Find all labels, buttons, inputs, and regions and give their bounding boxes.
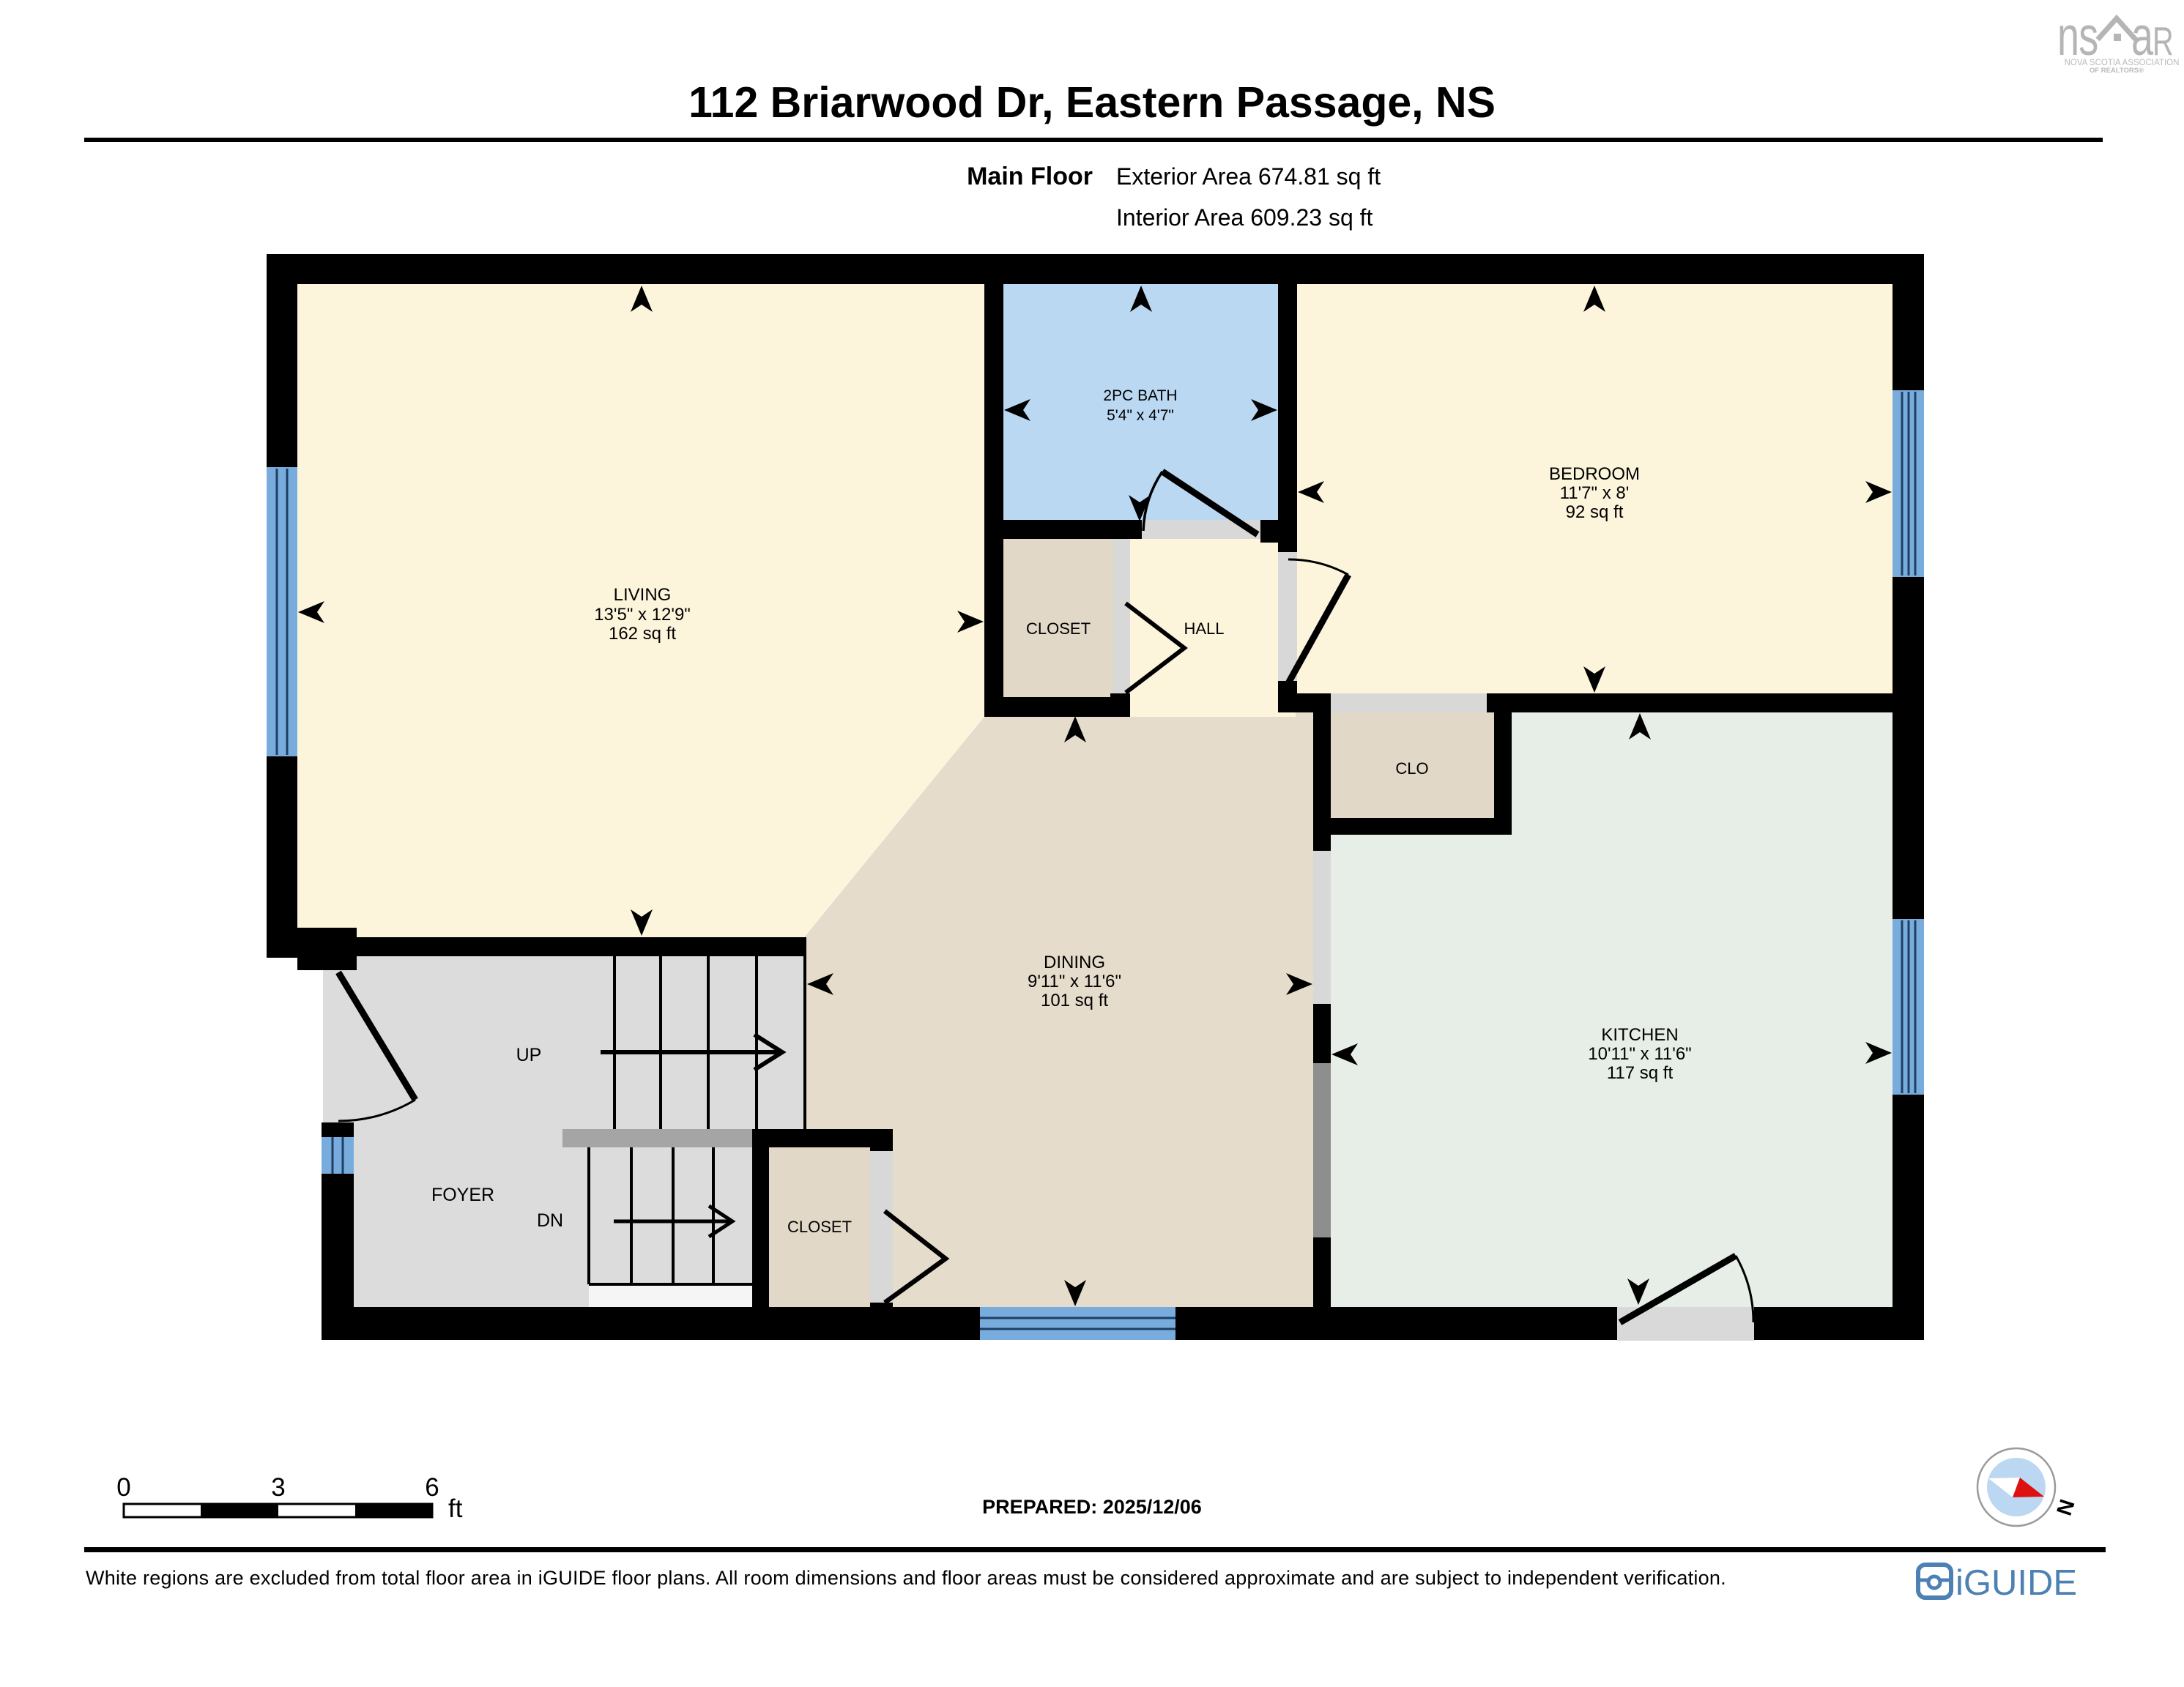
svg-text:2PC BATH: 2PC BATH bbox=[1103, 387, 1177, 404]
svg-text:DINING: DINING bbox=[1044, 953, 1105, 972]
svg-text:Exterior Area 674.81 sq ft: Exterior Area 674.81 sq ft bbox=[1116, 163, 1381, 190]
svg-text:iGUIDE: iGUIDE bbox=[1955, 1563, 2077, 1603]
svg-text:R: R bbox=[2153, 20, 2174, 64]
svg-text:LIVING: LIVING bbox=[614, 585, 672, 605]
svg-text:KITCHEN: KITCHEN bbox=[1601, 1025, 1678, 1045]
svg-text:6: 6 bbox=[425, 1473, 439, 1502]
svg-text:FOYER: FOYER bbox=[431, 1185, 494, 1205]
svg-text:Interior Area 609.23 sq ft: Interior Area 609.23 sq ft bbox=[1116, 204, 1373, 231]
svg-text:117 sq ft: 117 sq ft bbox=[1607, 1063, 1674, 1083]
svg-text:DN: DN bbox=[537, 1210, 563, 1231]
svg-text:CLOSET: CLOSET bbox=[1026, 619, 1091, 638]
svg-text:HALL: HALL bbox=[1184, 619, 1224, 638]
svg-text:ft: ft bbox=[448, 1494, 463, 1523]
svg-text:0: 0 bbox=[116, 1473, 130, 1502]
svg-text:CLO: CLO bbox=[1395, 759, 1428, 778]
svg-text:101 sq ft: 101 sq ft bbox=[1041, 991, 1108, 1010]
svg-text:5'4" x 4'7": 5'4" x 4'7" bbox=[1107, 407, 1174, 424]
svg-text:92 sq ft: 92 sq ft bbox=[1566, 502, 1624, 522]
svg-text:11'7" x 8': 11'7" x 8' bbox=[1560, 483, 1630, 503]
svg-text:112 Briarwood Dr, Eastern Pass: 112 Briarwood Dr, Eastern Passage, NS bbox=[688, 78, 1496, 127]
svg-text:ns: ns bbox=[2057, 5, 2098, 67]
svg-text:Main Floor: Main Floor bbox=[967, 163, 1093, 190]
svg-text:13'5" x 12'9": 13'5" x 12'9" bbox=[594, 605, 691, 625]
svg-text:White regions are excluded fro: White regions are excluded from total fl… bbox=[86, 1567, 1726, 1589]
svg-text:BEDROOM: BEDROOM bbox=[1549, 464, 1640, 484]
svg-text:10'11" x 11'6": 10'11" x 11'6" bbox=[1588, 1044, 1691, 1064]
svg-text:162 sq ft: 162 sq ft bbox=[609, 624, 676, 644]
svg-text:OF REALTORS®: OF REALTORS® bbox=[2090, 67, 2144, 75]
svg-text:UP: UP bbox=[516, 1045, 542, 1065]
svg-text:CLOSET: CLOSET bbox=[787, 1218, 852, 1236]
svg-text:9'11" x 11'6": 9'11" x 11'6" bbox=[1028, 972, 1121, 991]
svg-text:PREPARED: 2025/12/06: PREPARED: 2025/12/06 bbox=[982, 1496, 1202, 1518]
svg-text:3: 3 bbox=[271, 1473, 285, 1502]
